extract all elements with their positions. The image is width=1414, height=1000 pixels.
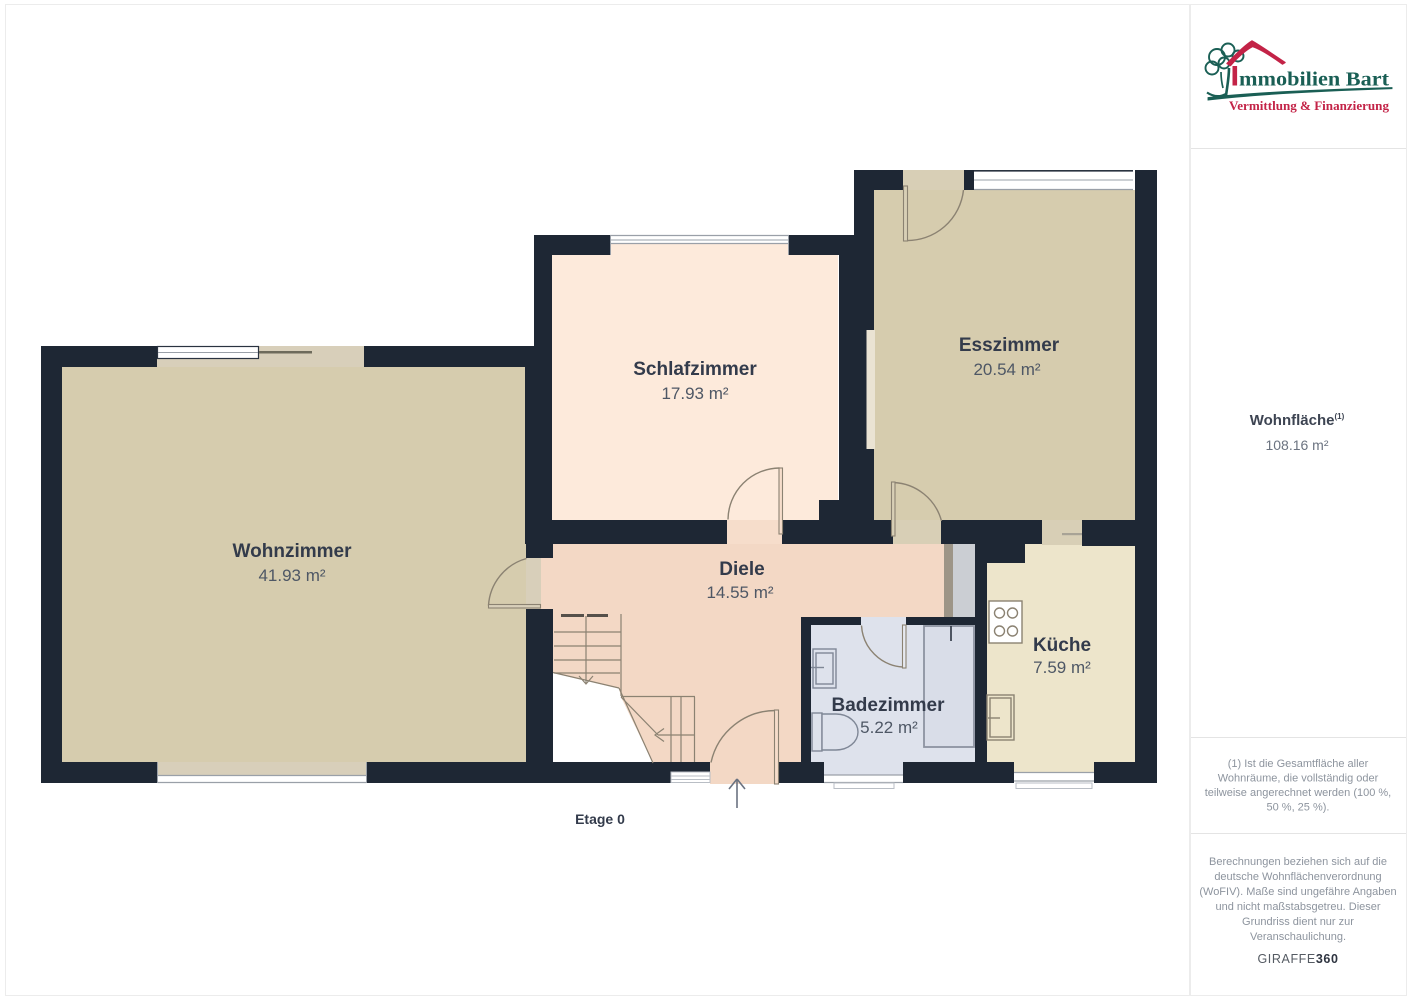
svg-text:deutsche Wohnflächenverordnung: deutsche Wohnflächenverordnung — [1214, 871, 1381, 883]
svg-text:Veranschaulichung.: Veranschaulichung. — [1250, 931, 1346, 943]
svg-text:Schlafzimmer: Schlafzimmer — [633, 359, 757, 380]
svg-text:17.93 m²: 17.93 m² — [661, 384, 728, 403]
svg-text:Berechnungen beziehen sich auf: Berechnungen beziehen sich auf die — [1209, 856, 1387, 868]
svg-text:Etage 0: Etage 0 — [575, 811, 625, 827]
svg-text:Badezimmer: Badezimmer — [832, 695, 946, 716]
svg-text:Wohnfläche(1): Wohnfläche(1) — [1250, 412, 1345, 429]
svg-text:(WoFIV). Maße sind ungefähre A: (WoFIV). Maße sind ungefähre Angaben — [1199, 886, 1396, 898]
svg-text:Grundriss dient nur zur: Grundriss dient nur zur — [1242, 916, 1354, 928]
svg-text:GIRAFFE360: GIRAFFE360 — [1257, 952, 1338, 966]
svg-text:Wohnzimmer: Wohnzimmer — [233, 541, 353, 562]
svg-text:Wohnräume, die vollständig ode: Wohnräume, die vollständig oder — [1218, 773, 1379, 785]
svg-text:mmobilien Bart: mmobilien Bart — [1239, 69, 1389, 91]
svg-text:108.16 m²: 108.16 m² — [1265, 437, 1328, 453]
svg-text:(1) Ist die Gesamtfläche aller: (1) Ist die Gesamtfläche aller — [1228, 758, 1369, 770]
svg-text:Esszimmer: Esszimmer — [959, 335, 1060, 356]
svg-text:50 %, 25 %).: 50 %, 25 %). — [1267, 802, 1330, 814]
svg-text:Vermittlung & Finanzierung: Vermittlung & Finanzierung — [1229, 98, 1389, 113]
svg-text:20.54 m²: 20.54 m² — [973, 360, 1040, 379]
svg-text:und nicht maßstabsgetreu. Dies: und nicht maßstabsgetreu. Dieser — [1215, 901, 1380, 913]
svg-text:teilweise angerechnet werden (: teilweise angerechnet werden (100 %, — [1205, 787, 1392, 799]
svg-text:5.22 m²: 5.22 m² — [860, 718, 918, 737]
svg-text:7.59 m²: 7.59 m² — [1033, 658, 1091, 677]
svg-text:14.55 m²: 14.55 m² — [706, 583, 773, 602]
svg-text:41.93 m²: 41.93 m² — [258, 566, 325, 585]
svg-text:Küche: Küche — [1033, 635, 1091, 656]
svg-text:Diele: Diele — [719, 559, 764, 580]
